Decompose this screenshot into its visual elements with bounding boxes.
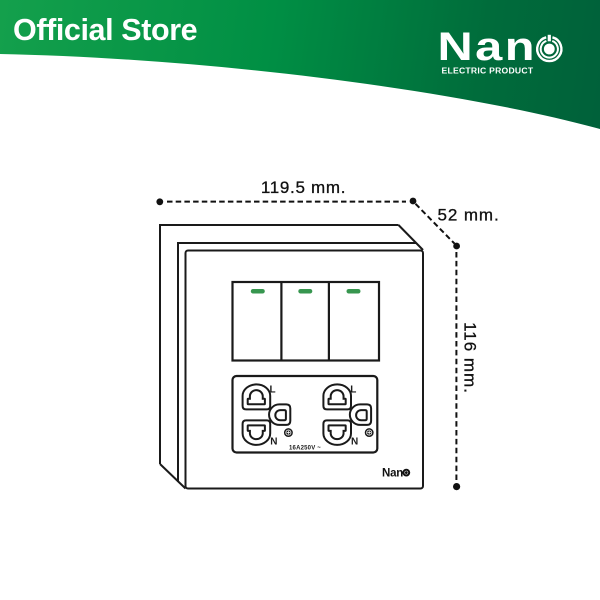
svg-text:116 mm.: 116 mm.: [461, 322, 480, 394]
svg-text:Nan: Nan: [382, 468, 403, 480]
svg-text:16A250V ~: 16A250V ~: [289, 446, 321, 452]
svg-text:N: N: [270, 437, 277, 448]
svg-text:L: L: [270, 384, 276, 395]
svg-text:52 mm.: 52 mm.: [438, 206, 500, 225]
svg-text:119.5 mm.: 119.5 mm.: [261, 178, 346, 197]
